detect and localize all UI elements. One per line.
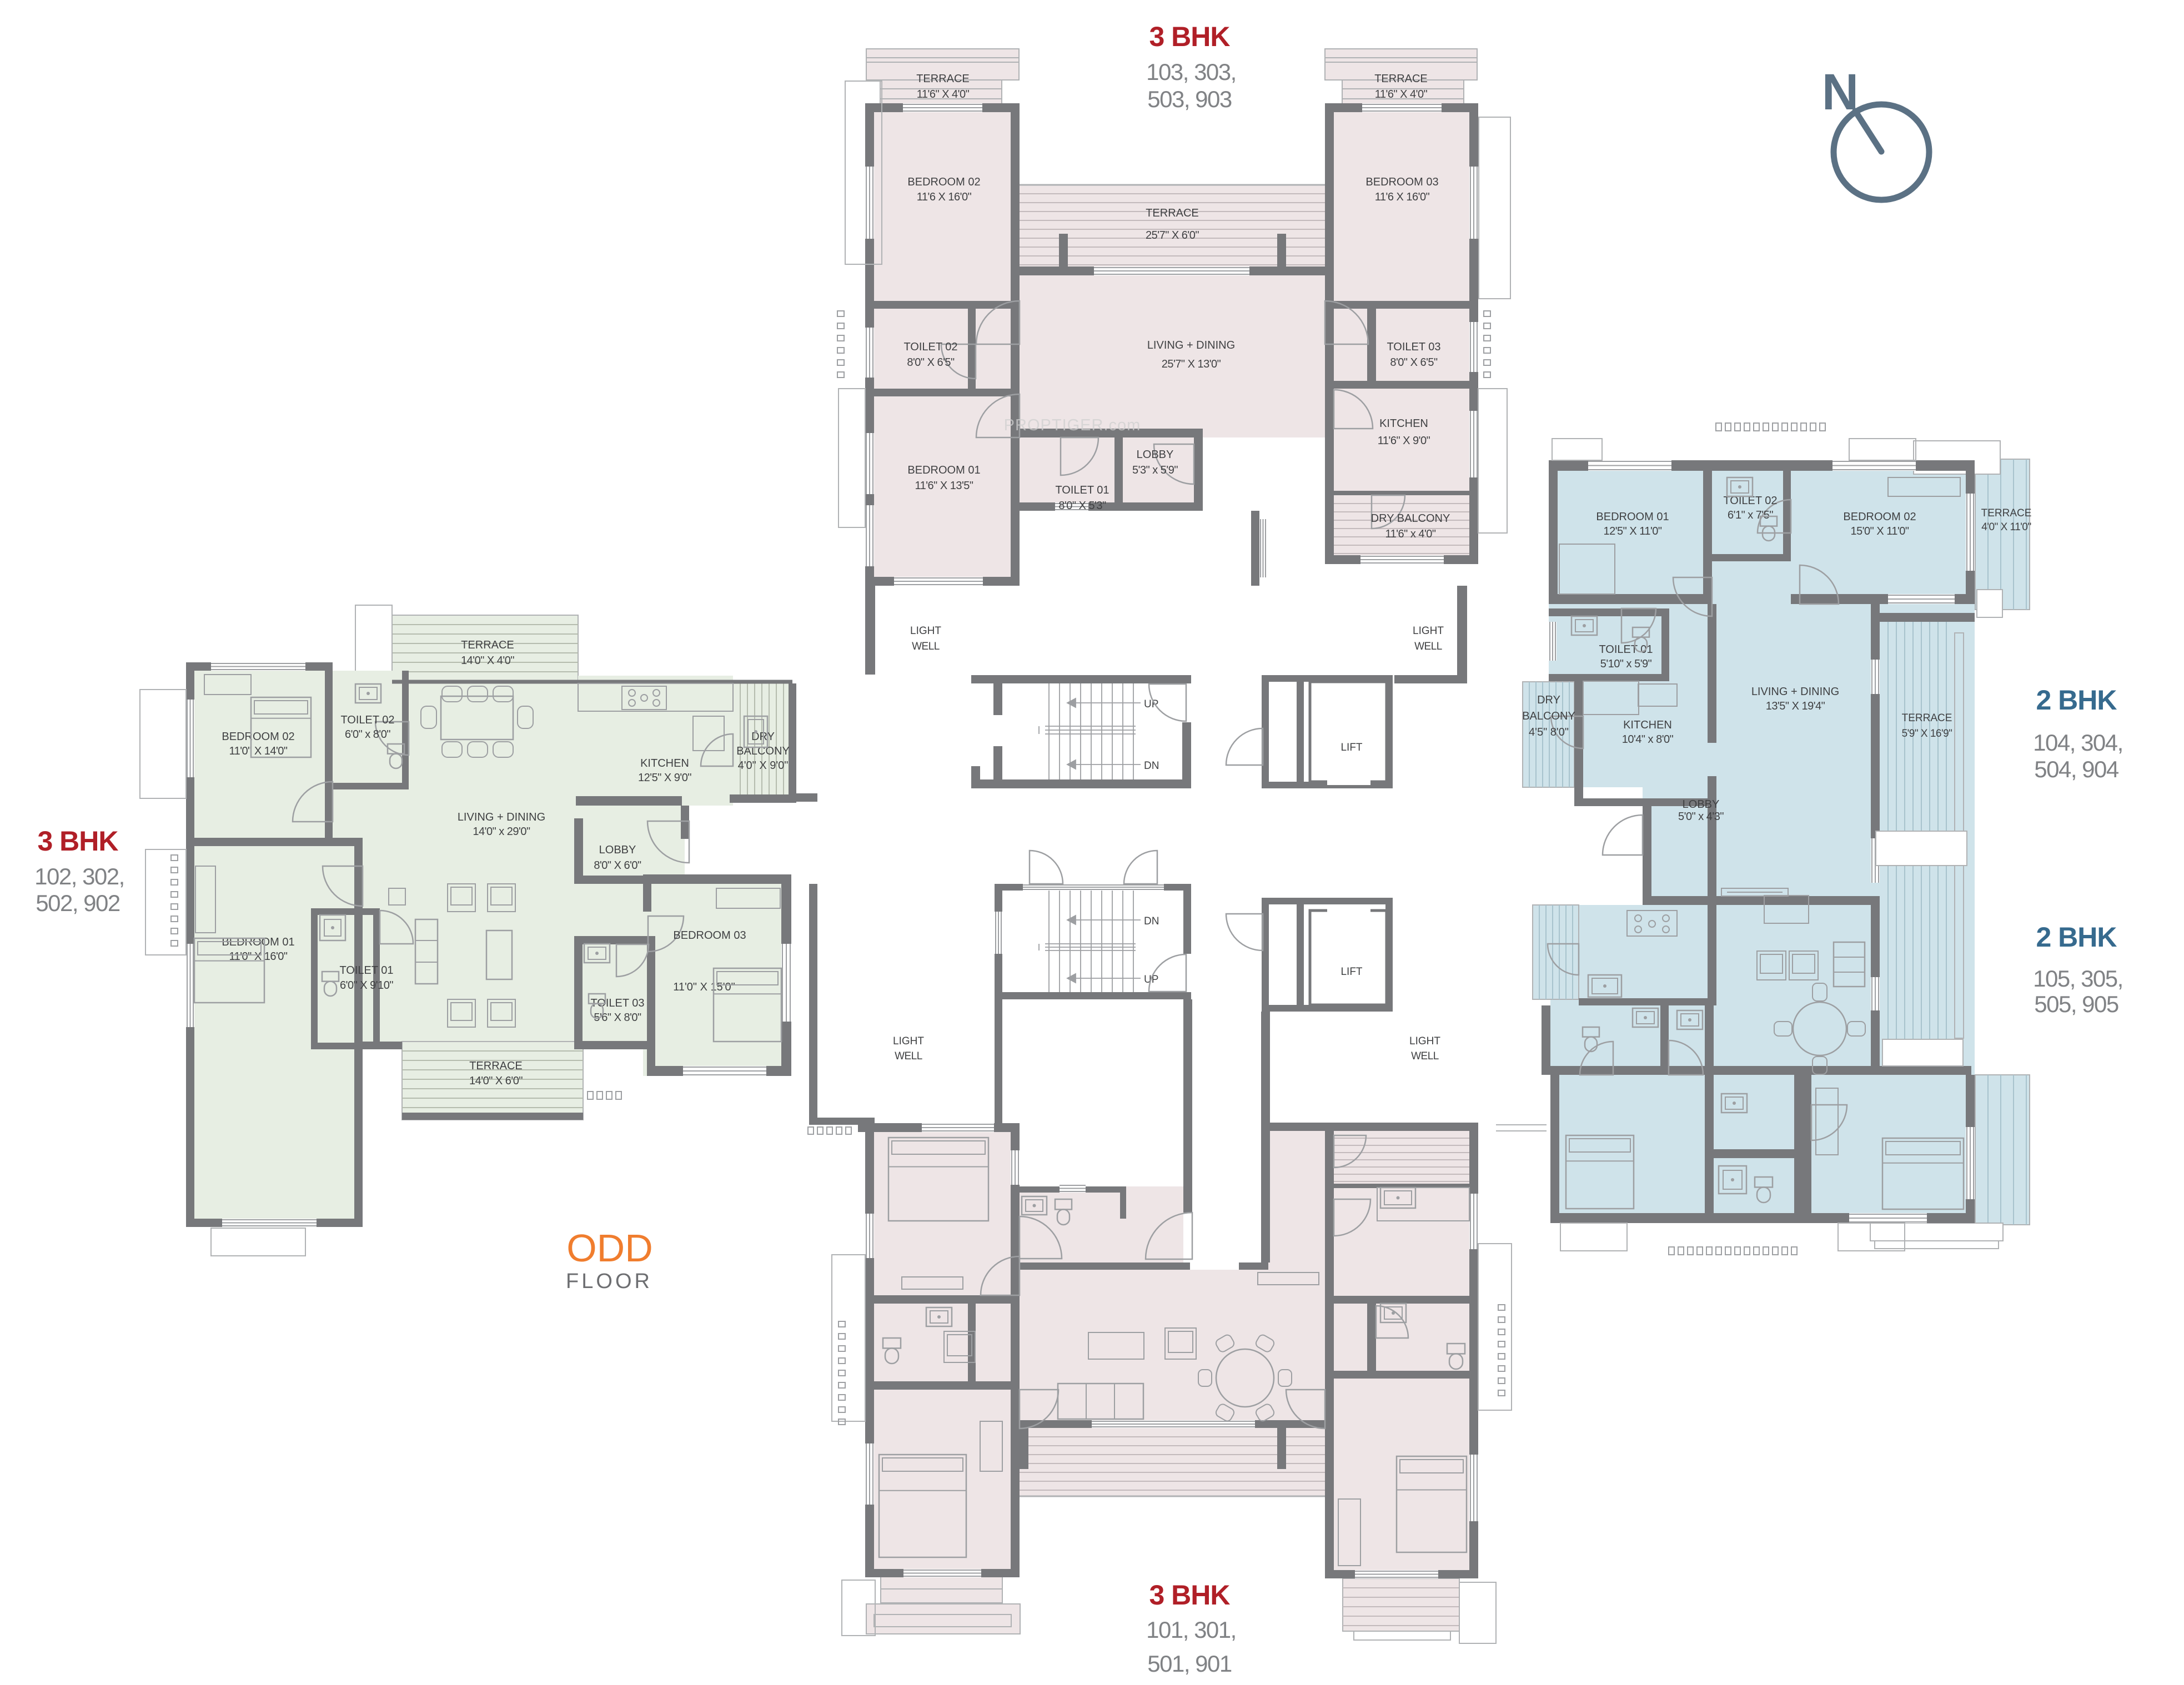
svg-text:503, 903: 503, 903 bbox=[1147, 86, 1232, 112]
svg-text:DN: DN bbox=[1144, 760, 1159, 772]
svg-text:BEDROOM 01: BEDROOM 01 bbox=[1596, 511, 1669, 523]
svg-text:LIGHT: LIGHT bbox=[1409, 1035, 1440, 1047]
svg-text:12'5" X 9'0": 12'5" X 9'0" bbox=[638, 772, 691, 784]
svg-text:TOILET 01: TOILET 01 bbox=[339, 964, 393, 977]
svg-text:14'0" x 29'0": 14'0" x 29'0" bbox=[473, 826, 530, 838]
svg-text:14'0" X 4'0": 14'0" X 4'0" bbox=[461, 655, 514, 667]
svg-text:TERRACE: TERRACE bbox=[1146, 207, 1199, 219]
svg-text:TOILET 01: TOILET 01 bbox=[1055, 484, 1109, 496]
svg-text:LOBBY: LOBBY bbox=[599, 844, 636, 856]
svg-text:11'6" X 9'0": 11'6" X 9'0" bbox=[1378, 435, 1430, 447]
svg-text:8'0" X 6'5": 8'0" X 6'5" bbox=[907, 356, 955, 369]
svg-text:LIFT: LIFT bbox=[1340, 742, 1362, 753]
svg-text:8'0" X 5'3": 8'0" X 5'3" bbox=[1058, 500, 1106, 512]
svg-text:25'7" X 6'0": 25'7" X 6'0" bbox=[1146, 229, 1199, 242]
svg-text:KITCHEN: KITCHEN bbox=[1379, 418, 1428, 430]
svg-text:UP: UP bbox=[1144, 698, 1158, 710]
svg-text:5'9" X 16'9": 5'9" X 16'9" bbox=[1902, 728, 1952, 740]
svg-text:LOBBY: LOBBY bbox=[1137, 449, 1174, 461]
svg-text:3 BHK: 3 BHK bbox=[37, 826, 118, 857]
svg-text:102, 302,: 102, 302, bbox=[34, 863, 124, 889]
svg-text:TERRACE: TERRACE bbox=[1374, 73, 1428, 85]
svg-text:BEDROOM 03: BEDROOM 03 bbox=[1365, 176, 1438, 188]
svg-text:4'5" 8'0": 4'5" 8'0" bbox=[1529, 726, 1569, 738]
svg-text:105, 305,: 105, 305, bbox=[2033, 965, 2123, 992]
svg-text:LOBBY: LOBBY bbox=[1683, 798, 1720, 811]
svg-text:11'6" X 13'5": 11'6" X 13'5" bbox=[915, 480, 973, 492]
svg-text:BALCONY: BALCONY bbox=[1522, 710, 1575, 722]
svg-text:FLOOR: FLOOR bbox=[566, 1270, 652, 1293]
svg-text:5'6" X 8'0": 5'6" X 8'0" bbox=[594, 1012, 641, 1024]
svg-text:15'0" X 11'0": 15'0" X 11'0" bbox=[1850, 525, 1909, 537]
svg-text:TERRACE: TERRACE bbox=[461, 639, 514, 651]
svg-text:11'6 X 16'0": 11'6 X 16'0" bbox=[917, 191, 972, 203]
svg-text:501, 901: 501, 901 bbox=[1147, 1651, 1232, 1677]
svg-text:25'7" X 13'0": 25'7" X 13'0" bbox=[1162, 358, 1221, 370]
svg-text:TOILET 02: TOILET 02 bbox=[903, 341, 957, 353]
svg-text:LIGHT: LIGHT bbox=[893, 1035, 924, 1047]
svg-text:8'0" X 6'0": 8'0" X 6'0" bbox=[594, 859, 641, 872]
svg-text:WELL: WELL bbox=[912, 641, 940, 652]
svg-text:8'0" X 6'5": 8'0" X 6'5" bbox=[1390, 356, 1438, 369]
svg-text:13'5" X 19'4": 13'5" X 19'4" bbox=[1766, 700, 1825, 712]
svg-text:TOILET 02: TOILET 02 bbox=[340, 714, 394, 726]
svg-text:11'0" X 15'0": 11'0" X 15'0" bbox=[673, 981, 735, 993]
svg-text:11'6 X 16'0": 11'6 X 16'0" bbox=[1375, 191, 1430, 203]
svg-text:DRY: DRY bbox=[1537, 694, 1560, 706]
svg-text:101, 301,: 101, 301, bbox=[1146, 1617, 1236, 1643]
svg-text:11'6" X 4'0": 11'6" X 4'0" bbox=[917, 88, 970, 100]
svg-text:BEDROOM 01: BEDROOM 01 bbox=[907, 464, 980, 476]
svg-text:505, 905: 505, 905 bbox=[2034, 991, 2118, 1017]
svg-text:4'0" X 11'0": 4'0" X 11'0" bbox=[1981, 521, 2031, 533]
svg-text:2 BHK: 2 BHK bbox=[2036, 685, 2117, 716]
svg-text:BEDROOM 02: BEDROOM 02 bbox=[907, 176, 980, 188]
svg-text:5'10" x 5'9": 5'10" x 5'9" bbox=[1600, 658, 1652, 670]
svg-text:KITCHEN: KITCHEN bbox=[640, 757, 689, 769]
svg-text:TERRACE: TERRACE bbox=[1902, 712, 1952, 724]
svg-text:TERRACE: TERRACE bbox=[1981, 507, 2032, 519]
svg-text:DRY BALCONY: DRY BALCONY bbox=[1371, 512, 1450, 525]
svg-text:14'0" X 6'0": 14'0" X 6'0" bbox=[469, 1075, 523, 1087]
svg-text:KITCHEN: KITCHEN bbox=[1623, 719, 1672, 731]
svg-text:11'6" X 4'0": 11'6" X 4'0" bbox=[1375, 88, 1428, 100]
svg-text:TOILET 03: TOILET 03 bbox=[1387, 341, 1440, 353]
svg-text:502, 902: 502, 902 bbox=[36, 890, 120, 916]
svg-text:5'3" x 5'9": 5'3" x 5'9" bbox=[1132, 464, 1178, 476]
svg-text:504, 904: 504, 904 bbox=[2034, 756, 2119, 782]
svg-text:6'0" x 8'0": 6'0" x 8'0" bbox=[345, 728, 390, 741]
svg-text:LIVING + DINING: LIVING + DINING bbox=[458, 811, 545, 823]
svg-text:3 BHK: 3 BHK bbox=[1149, 1580, 1230, 1611]
svg-text:6'1" x 7'5": 6'1" x 7'5" bbox=[1728, 509, 1773, 521]
svg-text:103, 303,: 103, 303, bbox=[1146, 59, 1236, 85]
svg-text:BEDROOM 02: BEDROOM 02 bbox=[222, 731, 294, 743]
svg-text:4'0" X 9'0": 4'0" X 9'0" bbox=[738, 759, 789, 772]
svg-text:11'0" X 14'0": 11'0" X 14'0" bbox=[229, 745, 287, 757]
svg-text:LIVING + DINING: LIVING + DINING bbox=[1751, 686, 1839, 698]
svg-text:6'0" X 9'10": 6'0" X 9'10" bbox=[340, 979, 393, 992]
svg-text:104, 304,: 104, 304, bbox=[2033, 730, 2123, 756]
svg-text:5'0" x 4'3": 5'0" x 4'3" bbox=[1678, 811, 1724, 823]
svg-text:BEDROOM 03: BEDROOM 03 bbox=[673, 929, 746, 942]
svg-text:10'4" x 8'0": 10'4" x 8'0" bbox=[1622, 733, 1674, 746]
svg-text:WELL: WELL bbox=[895, 1050, 922, 1062]
svg-text:WELL: WELL bbox=[1411, 1050, 1439, 1062]
svg-text:2 BHK: 2 BHK bbox=[2036, 922, 2117, 953]
svg-text:BEDROOM 02: BEDROOM 02 bbox=[1843, 511, 1916, 523]
svg-text:WELL: WELL bbox=[1414, 641, 1442, 652]
svg-text:LIGHT: LIGHT bbox=[1413, 625, 1444, 637]
svg-text:PROPTIGER.com: PROPTIGER.com bbox=[1004, 416, 1141, 434]
svg-text:LIFT: LIFT bbox=[1340, 966, 1362, 978]
svg-text:LIVING + DINING: LIVING + DINING bbox=[1147, 339, 1235, 351]
svg-text:TERRACE: TERRACE bbox=[469, 1060, 523, 1072]
svg-text:DN: DN bbox=[1144, 916, 1159, 927]
svg-text:ODD: ODD bbox=[566, 1226, 653, 1270]
svg-text:LIGHT: LIGHT bbox=[910, 625, 941, 637]
svg-text:12'5" X 11'0": 12'5" X 11'0" bbox=[1603, 525, 1661, 537]
svg-text:11'6" x 4'0": 11'6" x 4'0" bbox=[1385, 528, 1435, 540]
svg-text:TERRACE: TERRACE bbox=[916, 73, 970, 85]
svg-text:3 BHK: 3 BHK bbox=[1149, 21, 1230, 52]
